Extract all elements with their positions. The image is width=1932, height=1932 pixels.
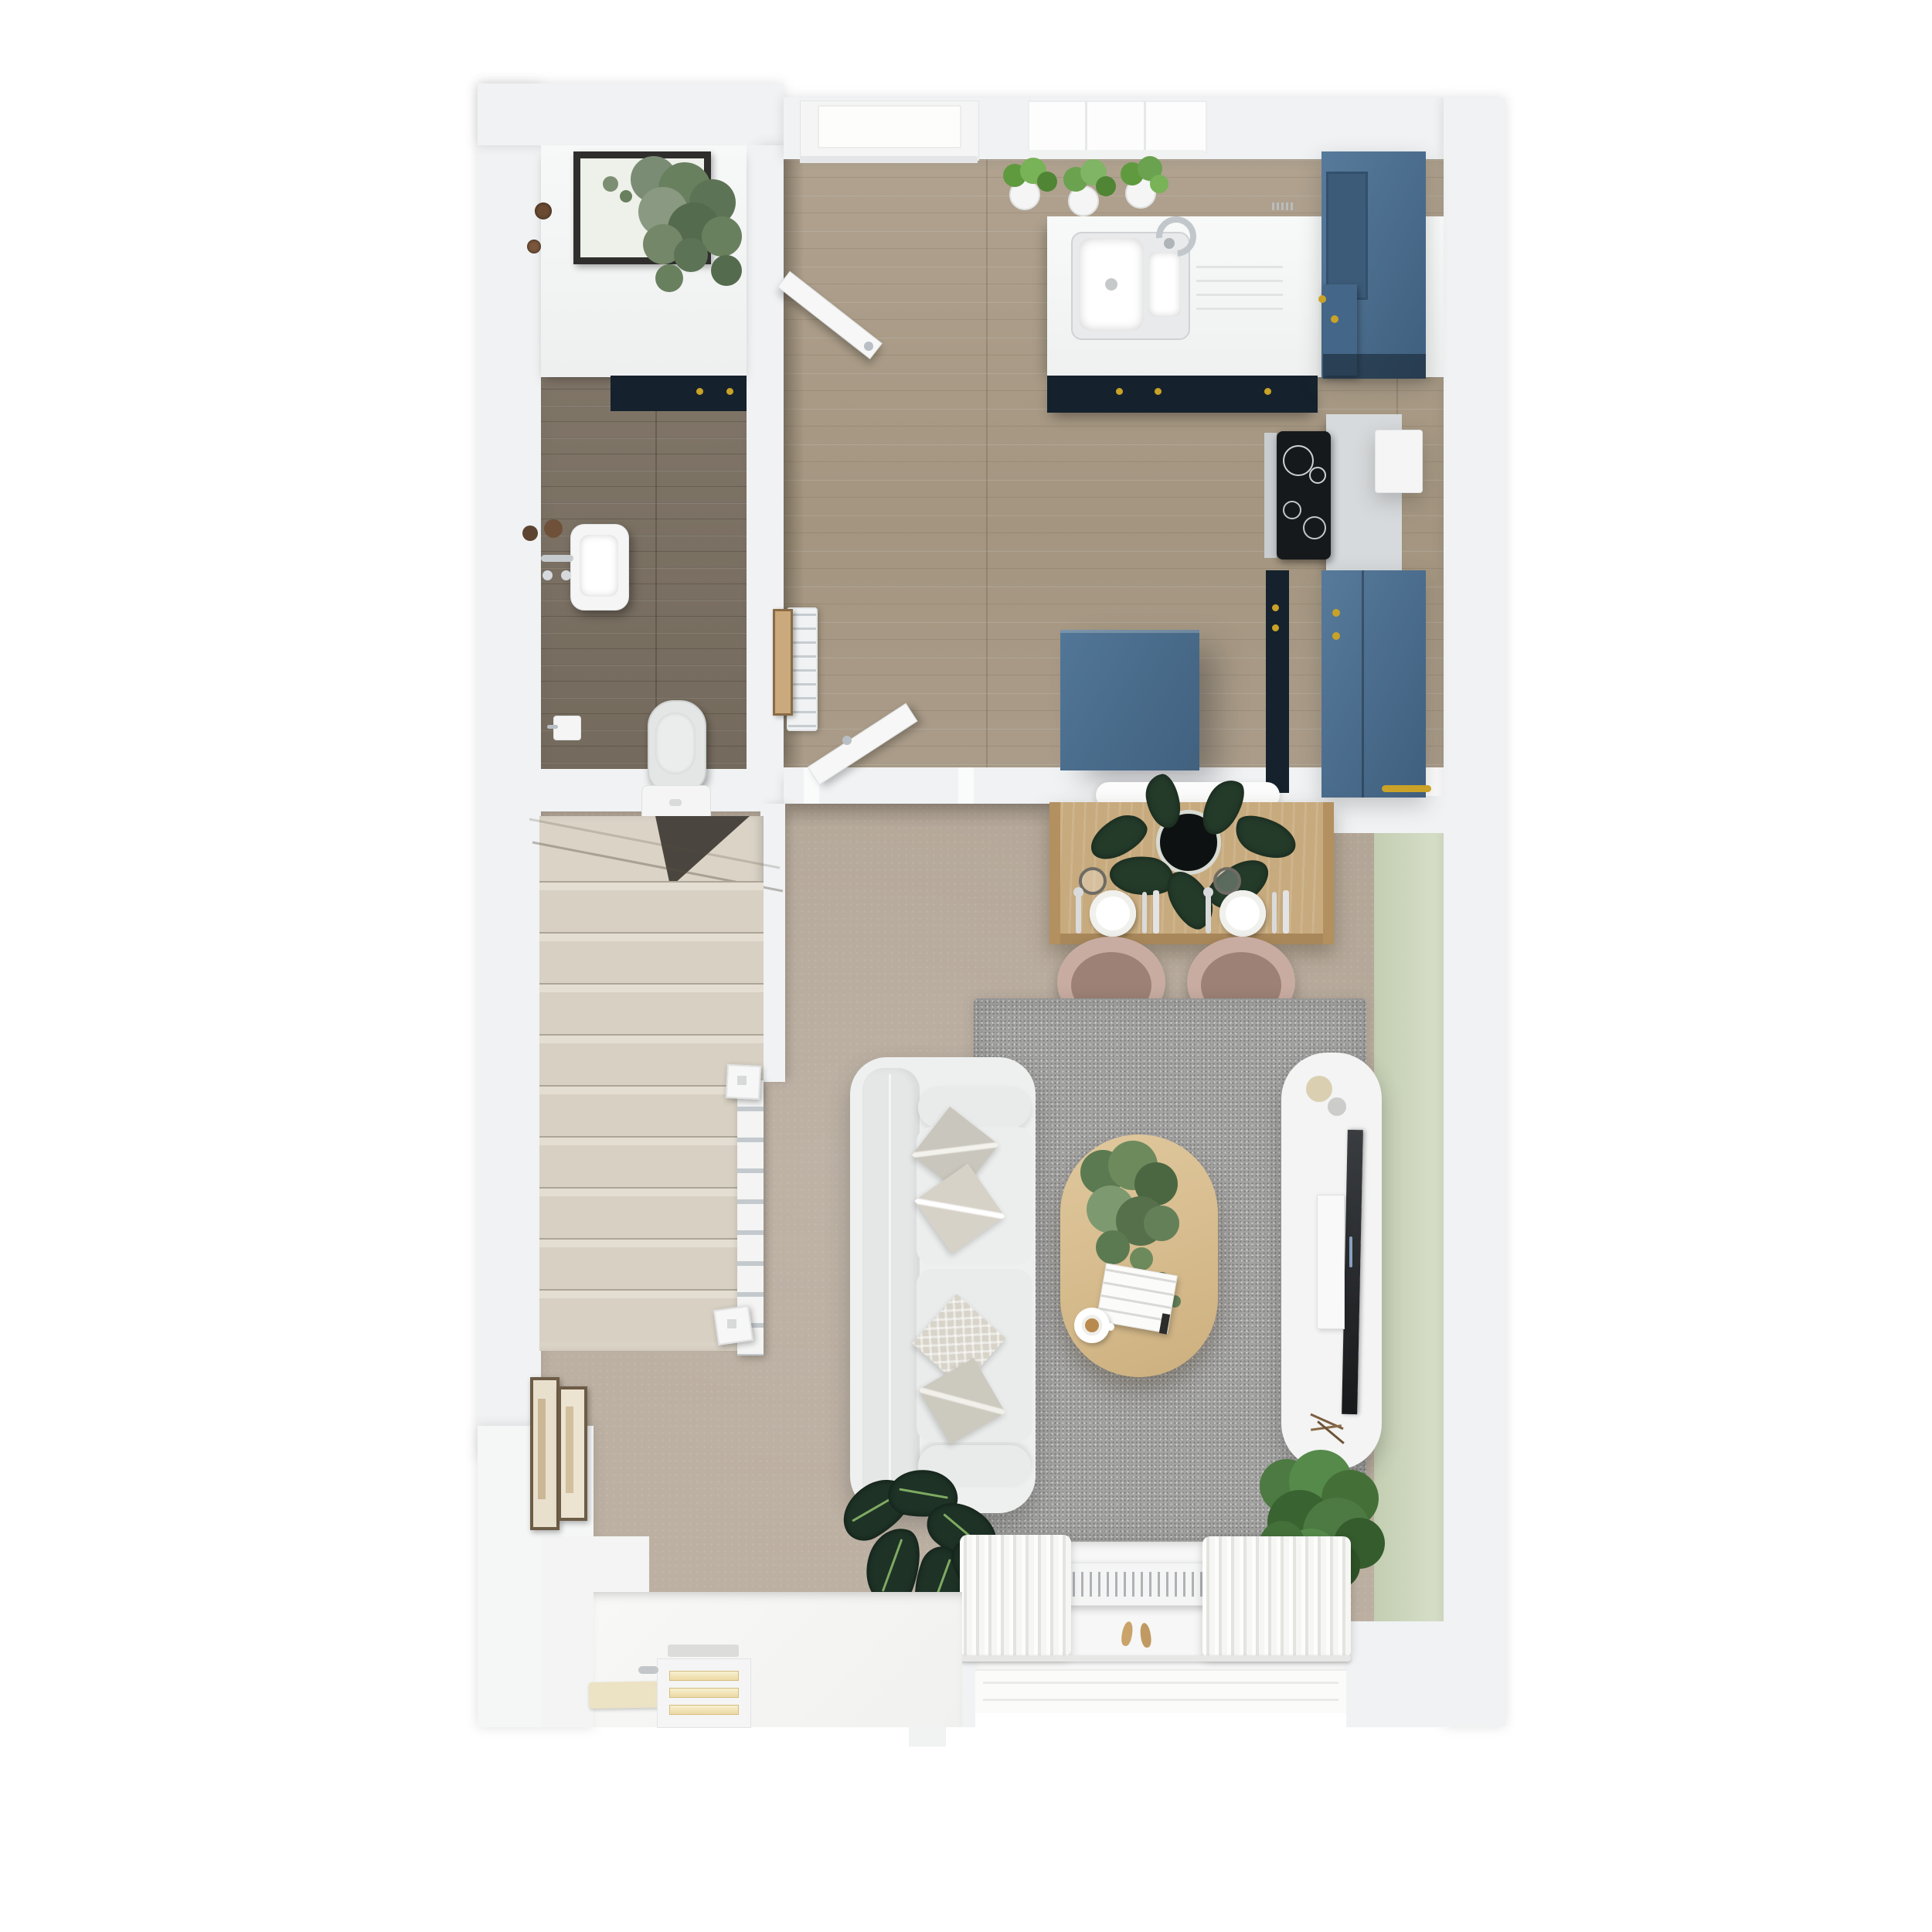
extractor-box — [1375, 430, 1423, 493]
kitchen-window-sill — [1028, 150, 1204, 159]
front-door-letterbox-slat — [669, 1671, 739, 1681]
front-door-letterbox-slat — [669, 1688, 739, 1698]
wall-right — [1444, 97, 1505, 1726]
dinner-plate — [1090, 890, 1136, 937]
back-door-glass — [818, 105, 961, 148]
base-cabinets-front — [1047, 376, 1318, 413]
wc-plant-leaf — [711, 255, 742, 286]
wc-soap-bronze — [522, 526, 538, 541]
wc-vanity-handle — [726, 388, 733, 395]
wc-plant-leaf — [674, 238, 708, 272]
fork — [1142, 892, 1147, 934]
wc-soap-bronze — [544, 519, 563, 538]
wc-door-handle — [864, 342, 873, 351]
stair-tread — [539, 983, 764, 1036]
toilet-flush-button — [669, 799, 682, 806]
stair-tread — [539, 1136, 764, 1189]
herb-leaves — [1150, 175, 1168, 193]
kitchen-window-mullion — [1085, 100, 1087, 150]
sink-drainer-groove — [1196, 294, 1283, 296]
tall-cabinet-seam — [1362, 570, 1364, 798]
hob-ring — [1309, 467, 1326, 484]
tall-cabinet-shadow — [1323, 354, 1426, 379]
wc-vanity-handle — [696, 388, 703, 395]
wall-kitchen-living-step — [1333, 796, 1444, 833]
cabinet-handle — [1155, 388, 1162, 395]
wc-tap-handle — [543, 570, 553, 580]
kitchen-window-glass — [1028, 100, 1207, 153]
cabinet-handle — [1318, 295, 1326, 303]
cabinet-handle — [1331, 315, 1338, 323]
sofa-back — [862, 1068, 920, 1505]
wall-top-wc — [478, 83, 784, 145]
hall-artwork-smudge — [566, 1406, 573, 1493]
sink-drainer-groove — [1196, 280, 1283, 282]
sink-small-bowl — [1148, 252, 1181, 317]
sink-tap-base — [1164, 238, 1175, 249]
kitchen-island — [1060, 630, 1199, 770]
wc-vanity-front — [611, 376, 747, 411]
leaning-picture — [773, 609, 793, 716]
wc-picture-art — [603, 176, 618, 192]
spoon-head — [1073, 887, 1083, 897]
curtain-rod — [960, 1655, 1351, 1662]
wc-tap-handle — [561, 570, 571, 580]
counter-vent — [1272, 202, 1294, 210]
stair-tread — [539, 881, 764, 934]
radiator-fins — [1073, 1572, 1215, 1597]
kitchen-window-mullion — [1144, 100, 1146, 150]
base-cabinet-side — [1266, 570, 1289, 793]
window-glazing-line — [983, 1682, 1338, 1684]
tv-unit-decor — [1306, 1076, 1332, 1102]
wall-bottom-left-stub — [962, 1662, 975, 1727]
spoon — [1206, 893, 1211, 934]
spoon-head — [1203, 887, 1213, 897]
cabinet-handle — [1332, 609, 1340, 617]
floor-plan-render — [0, 0, 1932, 1932]
wc-plant-leaf — [702, 216, 742, 257]
cabinet-handle — [1272, 604, 1279, 611]
curtain-right — [1202, 1536, 1351, 1658]
cabinet-handle — [1116, 388, 1123, 395]
stair-tread — [539, 1238, 764, 1291]
coffee-plant-leaf — [1144, 1206, 1179, 1241]
hob-ring — [1283, 501, 1301, 519]
sofa-armrest — [918, 1087, 1031, 1128]
coffee-cup — [1082, 1315, 1102, 1335]
herb-leaves — [1096, 176, 1116, 196]
sink-drainer-groove — [1196, 308, 1283, 310]
spoon — [1076, 893, 1081, 934]
knife — [1153, 890, 1159, 934]
coffee-plant-leaf — [1096, 1230, 1130, 1264]
stair-newel-cap — [727, 1319, 736, 1328]
cabinet-gold-bar — [1382, 785, 1431, 792]
coffee-plant-sprig — [1130, 1247, 1153, 1270]
tv-unit-decor — [1328, 1097, 1346, 1116]
stair-tread — [539, 1187, 764, 1240]
sink-drain — [1105, 278, 1117, 291]
toilet-seat-line — [655, 713, 696, 774]
toilet-roll-pin — [547, 725, 558, 729]
cabinet-handle — [1272, 624, 1279, 631]
downpipe-tab — [909, 1726, 946, 1747]
dried-flower — [535, 202, 552, 219]
sink-drainer-groove — [1196, 266, 1283, 268]
back-door-threshold — [800, 156, 978, 163]
stair-newel-cap — [737, 1076, 747, 1085]
kitchen-door-handle — [842, 736, 852, 745]
dried-flower — [527, 240, 541, 253]
window-glazing-line — [983, 1699, 1338, 1701]
tv-screen-reflection — [1349, 1236, 1352, 1267]
oven-chrome-strip — [1264, 433, 1277, 558]
wc-picture-art — [620, 190, 632, 202]
soundbar — [1317, 1195, 1345, 1329]
fork — [1272, 892, 1277, 934]
dinner-plate — [1219, 890, 1266, 937]
curtain-left — [960, 1535, 1071, 1657]
cabinet-handle — [1332, 632, 1340, 640]
wall-stairwell-east — [760, 804, 785, 1082]
tall-cabinet-lower — [1321, 570, 1426, 798]
stair-winder-edge — [529, 818, 781, 869]
coffee-cup-handle — [1107, 1323, 1114, 1331]
kitchen-door-jamb — [958, 767, 974, 804]
knife — [1283, 890, 1289, 934]
cabinet-handle — [1264, 388, 1271, 395]
window-glazing — [975, 1669, 1346, 1713]
hob-ring — [1303, 516, 1326, 539]
sofa-back-seam — [889, 1074, 891, 1499]
wc-plant-leaf — [655, 264, 683, 292]
front-door-handle — [638, 1666, 658, 1674]
wc-tap-spout — [541, 555, 573, 562]
stair-tread — [539, 932, 764, 985]
herb-leaves — [1037, 172, 1057, 192]
tall-cabinet-door-panel — [1326, 172, 1368, 300]
front-door-step — [668, 1645, 739, 1657]
front-door-letterbox-slat — [669, 1705, 739, 1715]
wall-bottom-right — [1346, 1621, 1444, 1727]
hall-artwork-smudge — [538, 1399, 546, 1499]
wc-basin-bowl — [580, 535, 618, 597]
